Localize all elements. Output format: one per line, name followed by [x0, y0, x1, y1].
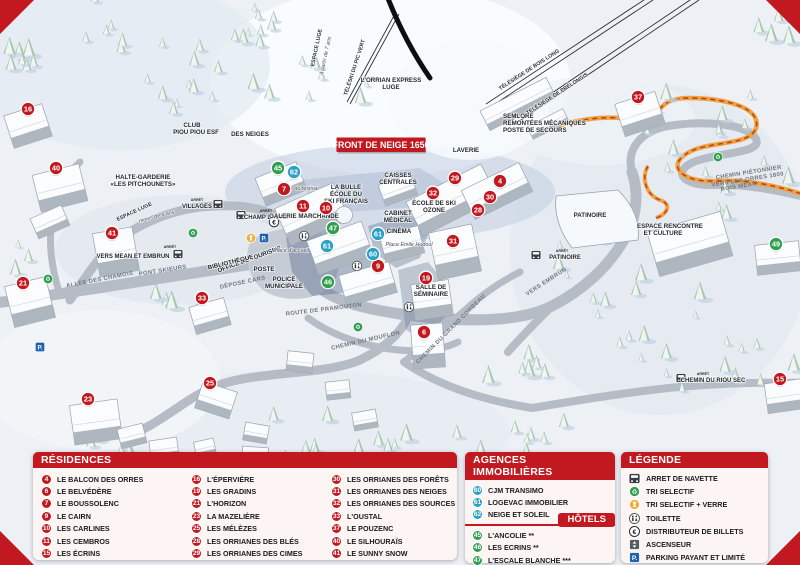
map-marker-61: 61	[320, 239, 334, 254]
map-label: CABINET	[384, 210, 412, 217]
map-label: «LES PITCHOUNETS»	[111, 181, 177, 188]
legende-item-glass: TRI SELECTIF + VERRE	[628, 498, 762, 511]
map-label: DES NEIGES	[231, 131, 269, 138]
residence-label: LE BOUSSOLENC	[57, 499, 119, 508]
marker-number: 16	[24, 105, 32, 114]
marker-number: 25	[206, 379, 214, 388]
residences-list: 4LE BALCON DES ORRES6LE BELVÉDÈRE7LE BOU…	[33, 468, 457, 563]
residence-label: L'HORIZON	[207, 499, 246, 508]
map-marker-29: 29	[448, 171, 462, 186]
building	[69, 399, 122, 445]
hotels-header: HÔTELS	[558, 513, 615, 527]
legende-header: LÉGENDE	[621, 452, 768, 468]
agence-item-60: 60CJM TRANSIMO	[472, 484, 609, 496]
marker-number-badge: 60	[472, 485, 483, 496]
residence-item-40: 40LE SILHOURAÏS	[331, 535, 455, 547]
residence-item-32: 32LES ORRIANES DES SOURCES	[331, 498, 455, 510]
marker-number: 45	[274, 164, 282, 173]
legende-label: TOILETTE	[646, 514, 681, 523]
map-label: OZONE	[423, 207, 445, 214]
map-marker-10: 10	[319, 201, 333, 216]
front-de-neige-banner: FRONT DE NEIGE 1650	[333, 138, 430, 154]
legende-item-atm: €DISTRIBUTEUR DE BILLETS	[628, 525, 762, 538]
bus-icon	[213, 200, 223, 209]
map-marker-37: 37	[631, 90, 645, 105]
bus-stop-caption: ARRÊT	[164, 244, 177, 249]
map-marker-60: 60	[366, 247, 380, 262]
recycle-icon: ♻	[713, 152, 723, 162]
legend-panel-residences: RÉSIDENCES 4LE BALCON DES ORRES6LE BELVÉ…	[33, 452, 457, 560]
residence-item-41: 41LE SUNNY SNOW	[331, 547, 455, 559]
building	[286, 351, 314, 374]
map-label: SÉMINAIRE	[414, 290, 448, 298]
bus-stop-caption: ARRÊT	[697, 371, 710, 376]
residence-label: LE POUZENC	[347, 524, 393, 533]
residence-label: L'ÉPERVIÈRE	[207, 475, 254, 484]
svg-text:P.: P.	[632, 555, 637, 562]
map-marker-49: 49	[769, 237, 783, 252]
hotel-label: L'ESCALE BLANCHE ***	[488, 556, 571, 565]
agence-label: CJM TRANSIMO	[488, 486, 544, 495]
hotel-item-47: 47L'ESCALE BLANCHE ***	[472, 554, 609, 565]
map-marker-11: 11	[296, 199, 310, 214]
residence-label: LES CARLINES	[57, 524, 110, 533]
recycle-icon: ♻	[43, 274, 53, 284]
map-marker-6: 6	[417, 325, 431, 340]
residence-label: LE CAIRN	[57, 512, 91, 521]
agence-label: LOGEVAC IMMOBILIER	[488, 498, 568, 507]
building	[243, 422, 270, 444]
marker-number: 29	[451, 174, 459, 183]
legende-item-bus: ARRET DE NAVETTE	[628, 472, 762, 485]
recycle-icon: ♻	[353, 322, 363, 332]
residence-item-21: 21L'HORIZON	[191, 498, 331, 510]
marker-number: 41	[108, 229, 116, 238]
svg-text:♻: ♻	[355, 324, 361, 331]
residence-label: LES GRADINS	[207, 487, 256, 496]
hotel-label: LES ECRINS **	[488, 543, 539, 552]
residence-item-11: 11LES CEMBROS	[41, 535, 191, 547]
map-marker-7: 7	[277, 182, 291, 197]
marker-number-badge: 41	[331, 548, 342, 559]
legend-panel-agences-hotels: AGENCES IMMOBILIÈRES 60CJM TRANSIMO61LOG…	[465, 452, 615, 563]
toilet-icon	[299, 231, 309, 241]
marker-number-badge: 23	[191, 511, 202, 522]
residence-label: LE BALCON DES ORRES	[57, 475, 143, 484]
legende-item-parking: P.PARKING PAYANT ET LIMITÉ	[628, 551, 762, 564]
map-label: CAISSES	[384, 172, 411, 179]
map-label: CENTRALES	[379, 179, 417, 186]
map-label: CLUB	[183, 122, 201, 129]
map-label: MÉDICAL	[384, 216, 412, 224]
marker-number: 7	[282, 185, 286, 194]
marker-number: 15	[776, 375, 784, 384]
residence-item-30: 30LES ORRIANES DES FORÊTS	[331, 473, 455, 485]
map-marker-25: 25	[203, 376, 217, 391]
residence-item-10: 10LES CARLINES	[41, 523, 191, 535]
resort-map-page: P.P.♻♻♻♻€ARRÊTVILLAGESARRÊTCHAMP LACASAR…	[0, 0, 800, 565]
marker-number-badge: 62	[472, 509, 483, 520]
map-marker-40: 40	[49, 161, 63, 176]
marker-number-badge: 33	[331, 511, 342, 522]
marker-number: 23	[84, 395, 92, 404]
map-marker-33: 33	[195, 291, 209, 306]
banner-label: FRONT DE NEIGE 1650	[333, 140, 430, 150]
bus-stop-caption: ARRÊT	[556, 248, 569, 253]
marker-number: 11	[299, 202, 307, 211]
marker-number: 28	[474, 206, 482, 215]
svg-text:P.: P.	[261, 235, 266, 242]
map-marker-23: 23	[81, 392, 95, 407]
hotel-item-46: 46LES ECRINS **	[472, 542, 609, 554]
marker-number: 10	[322, 204, 330, 213]
map-marker-45: 45	[271, 161, 285, 176]
marker-number-badge: 46	[472, 542, 483, 553]
marker-number: 9	[376, 262, 380, 271]
marker-number: 6	[422, 328, 426, 337]
hotels-list: 45L'ANCOLIE **46LES ECRINS **47L'ESCALE …	[465, 528, 615, 565]
glass-icon	[246, 233, 256, 243]
marker-number: 31	[449, 237, 457, 246]
residence-item-23: 23LA MAZELIÈRE	[191, 510, 331, 522]
residences-column: 4LE BALCON DES ORRES6LE BELVÉDÈRE7LE BOU…	[41, 473, 191, 560]
bus-stop-label: CHEMIN DU RIOU SEC	[681, 378, 746, 384]
map-marker-4: 4	[493, 174, 507, 189]
map-label: LA BULLE	[331, 184, 361, 191]
map-marker-30: 30	[483, 190, 497, 205]
building	[428, 224, 481, 280]
map-label: ESPACE RENCONTRE	[637, 223, 703, 230]
marker-number-badge: 30	[331, 474, 342, 485]
marker-number-badge: 29	[191, 548, 202, 559]
residence-label: LE SUNNY SNOW	[347, 549, 408, 558]
residences-header: RÉSIDENCES	[33, 452, 457, 468]
svg-text:♻: ♻	[715, 154, 721, 161]
map-label: Place d'accueil	[273, 248, 310, 254]
marker-number-badge: 10	[41, 523, 52, 534]
residence-label: LES CEMBROS	[57, 537, 110, 546]
residence-label: LE SILHOURAÏS	[347, 537, 403, 546]
building	[352, 409, 379, 431]
map-label: PATINOIRE	[574, 212, 607, 219]
ice-rink-building	[556, 190, 639, 248]
hotels-divider: HÔTELS	[465, 524, 615, 526]
residence-item-25: 25LES MÉLÈZES	[191, 523, 331, 535]
residence-item-28: 28LES ORRIANES DES BLÉS	[191, 535, 331, 547]
marker-number-badge: 37	[331, 523, 342, 534]
map-label: CINÉMA	[387, 227, 412, 235]
toilet-icon	[352, 261, 362, 271]
recycle-icon: ♻	[188, 228, 198, 238]
map-marker-46: 46	[321, 275, 335, 290]
map-marker-32: 32	[426, 186, 440, 201]
toilet-icon	[628, 512, 641, 525]
legende-label: TRI SELECTIF + VERRE	[646, 500, 727, 509]
residence-label: LA MAZELIÈRE	[207, 512, 260, 521]
marker-number-badge: 16	[191, 474, 202, 485]
legende-item-recycle: ♻TRI SELECTIF	[628, 485, 762, 498]
legende-label: ARRET DE NAVETTE	[646, 474, 718, 483]
bus-icon	[173, 250, 183, 259]
marker-number-badge: 6	[41, 486, 52, 497]
residence-item-4: 4LE BALCON DES ORRES	[41, 473, 191, 485]
legend-panel-legende: LÉGENDE ARRET DE NAVETTE♻TRI SELECTIFTRI…	[621, 452, 768, 563]
residence-label: LES ORRIANES DES NEIGES	[347, 487, 447, 496]
marker-number: 40	[52, 164, 60, 173]
marker-number: 21	[19, 279, 27, 288]
marker-number: 62	[290, 168, 298, 177]
legende-label: PARKING PAYANT ET LIMITÉ	[646, 553, 745, 562]
legende-item-toilet: TOILETTE	[628, 512, 762, 525]
elevator-icon	[628, 538, 641, 551]
bus-icon	[628, 472, 641, 485]
marker-number-badge: 11	[41, 536, 52, 547]
marker-number: 37	[634, 93, 642, 102]
svg-text:♻: ♻	[632, 489, 638, 496]
residence-item-9: 9LE CAIRN	[41, 510, 191, 522]
marker-number: 32	[429, 189, 437, 198]
map-label: PIOU PIOU ESF	[173, 129, 219, 136]
map-label: LUGE	[382, 84, 399, 91]
residence-item-33: 33L'OUSTAL	[331, 510, 455, 522]
residence-label: LES ORRIANES DES CIMES	[207, 549, 302, 558]
marker-number-badge: 45	[472, 530, 483, 541]
legende-item-elevator: ASCENSEUR	[628, 538, 762, 551]
map-label: ÉCOLE DU	[330, 190, 363, 198]
residence-label: LES ORRIANES DES BLÉS	[207, 537, 299, 546]
residence-item-31: 31LES ORRIANES DES NEIGES	[331, 485, 455, 497]
toilet-icon	[404, 302, 414, 312]
marker-number: 47	[329, 224, 337, 233]
recycle-icon: ♻	[628, 485, 641, 498]
map-label: LAVERIE	[453, 147, 479, 154]
residences-column: 30LES ORRIANES DES FORÊTS31LES ORRIANES …	[331, 473, 455, 560]
residence-item-15: 15LES ÉCRINS	[41, 547, 191, 559]
residence-label: LE BELVÉDÈRE	[57, 487, 112, 496]
parking-icon: P.	[628, 551, 641, 564]
map-marker-16: 16	[21, 102, 35, 117]
agence-label: NEIGE ET SOLEIL	[488, 510, 550, 519]
svg-text:♻: ♻	[45, 276, 51, 283]
marker-number: 33	[198, 294, 206, 303]
map-marker-31: 31	[446, 234, 460, 249]
marker-number-badge: 9	[41, 511, 52, 522]
marker-number-badge: 21	[191, 498, 202, 509]
marker-number: 61	[323, 242, 331, 251]
building	[325, 380, 351, 400]
marker-number-badge: 19	[191, 486, 202, 497]
map-label: REMONTÉES MÉCANIQUES	[503, 119, 586, 127]
legende-list: ARRET DE NAVETTE♻TRI SELECTIFTRI SELECTI…	[621, 468, 768, 565]
residence-item-6: 6LE BELVÉDÈRE	[41, 485, 191, 497]
marker-number-badge: 32	[331, 498, 342, 509]
map-marker-28: 28	[471, 203, 485, 218]
legende-label: ASCENSEUR	[646, 540, 691, 549]
map-marker-41: 41	[105, 226, 119, 241]
marker-number-badge: 25	[191, 523, 202, 534]
map-label: L'ORRIAN EXPRESS	[361, 77, 422, 84]
marker-number-badge: 4	[41, 474, 52, 485]
svg-text:€: €	[633, 529, 637, 536]
marker-number: 61	[374, 230, 382, 239]
map-marker-15: 15	[773, 372, 787, 387]
bus-icon	[531, 251, 541, 260]
map-marker-21: 21	[16, 276, 30, 291]
legende-label: DISTRIBUTEUR DE BILLETS	[646, 527, 743, 536]
map-marker-61: 61	[371, 227, 385, 242]
svg-text:♻: ♻	[190, 230, 196, 237]
residence-item-19: 19LES GRADINS	[191, 485, 331, 497]
residence-label: LES MÉLÈZES	[207, 524, 257, 533]
residence-item-29: 29LES ORRIANES DES CIMES	[191, 547, 331, 559]
marker-number-badge: 40	[331, 536, 342, 547]
legende-label: TRI SELECTIF	[646, 487, 694, 496]
bus-stop-label: VERS MEAN ET EMBRUN	[96, 254, 169, 260]
glass-icon	[628, 498, 641, 511]
agences-header: AGENCES IMMOBILIÈRES	[465, 452, 615, 480]
map-label: HALTE-GARDERIE	[116, 174, 171, 181]
parking-icon: P.	[35, 342, 45, 352]
residence-item-16: 16L'ÉPERVIÈRE	[191, 473, 331, 485]
agence-item-61: 61LOGEVAC IMMOBILIER	[472, 496, 609, 508]
map-label: MUNICIPALE	[265, 283, 303, 290]
residence-label: LES ORRIANES DES FORÊTS	[347, 475, 449, 484]
residence-item-7: 7LE BOUSSOLENC	[41, 498, 191, 510]
marker-number: 30	[486, 193, 494, 202]
residences-column: 16L'ÉPERVIÈRE19LES GRADINS21L'HORIZON23L…	[191, 473, 331, 560]
marker-number-badge: 47	[472, 555, 483, 565]
residence-label: L'OUSTAL	[347, 512, 382, 521]
hotel-label: L'ANCOLIE **	[488, 531, 534, 540]
marker-number: 60	[369, 250, 377, 259]
marker-number-badge: 61	[472, 497, 483, 508]
bus-stop-label: VILLAGES	[182, 204, 212, 210]
map-marker-47: 47	[326, 221, 340, 236]
marker-number: 49	[772, 240, 780, 249]
marker-number-badge: 7	[41, 498, 52, 509]
marker-number: 46	[324, 278, 332, 287]
bus-stop-caption: ARRÊT	[191, 197, 204, 202]
map-label: ET CULTURE	[644, 230, 683, 237]
atm-icon: €	[628, 525, 641, 538]
hotel-item-45: 45L'ANCOLIE **	[472, 529, 609, 541]
map-label: POSTE	[254, 266, 275, 273]
parking-icon: P.	[259, 233, 269, 243]
map-marker-62: 62	[287, 165, 301, 180]
marker-number-badge: 28	[191, 536, 202, 547]
svg-text:P.: P.	[37, 344, 42, 351]
map-marker-19: 19	[419, 271, 433, 286]
map-label: SALLE DE	[416, 284, 447, 291]
marker-number: 19	[422, 274, 430, 283]
map-label: POSTE DE SECOURS	[503, 127, 567, 134]
residence-label: LES ORRIANES DES SOURCES	[347, 499, 455, 508]
marker-number-badge: 31	[331, 486, 342, 497]
residence-item-37: 37LE POUZENC	[331, 523, 455, 535]
map-label: Place Émile Hodoul	[385, 241, 433, 248]
residence-label: LES ÉCRINS	[57, 549, 100, 558]
marker-number-badge: 15	[41, 548, 52, 559]
map-label: POLICE	[272, 276, 295, 283]
bus-stop-label: PATINOIRE	[549, 255, 581, 261]
